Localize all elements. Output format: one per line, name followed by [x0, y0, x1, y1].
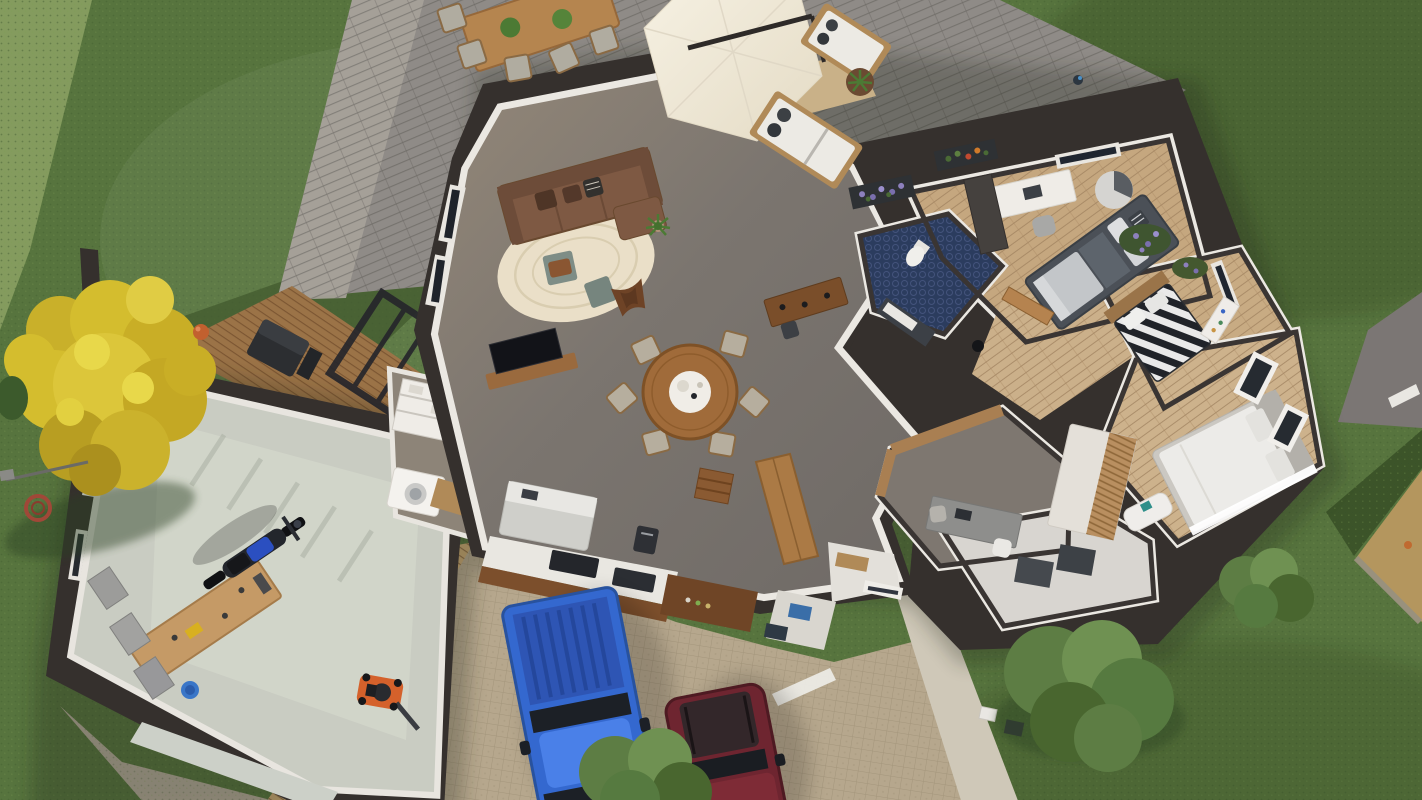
- bucket: [181, 681, 199, 699]
- floor-cushion-1: [542, 250, 578, 286]
- orange-ball: [193, 324, 209, 340]
- floor-plan-render: [0, 0, 1422, 800]
- bottle-2: [696, 601, 701, 606]
- potted-plant: [846, 68, 874, 96]
- sand-toy: [1404, 541, 1412, 549]
- bottle-3: [706, 604, 711, 609]
- garden-tap: [1073, 75, 1083, 85]
- round-dining-table: [643, 345, 737, 439]
- office-side-chair: [929, 505, 947, 523]
- ball-highlight: [196, 327, 201, 332]
- render-canvas: [0, 0, 1422, 800]
- mailbox: [979, 706, 997, 721]
- spot-lamp: [972, 340, 984, 352]
- bottle-1: [686, 598, 691, 603]
- wall-shelf: [694, 468, 733, 504]
- round-side-table: [1095, 171, 1133, 209]
